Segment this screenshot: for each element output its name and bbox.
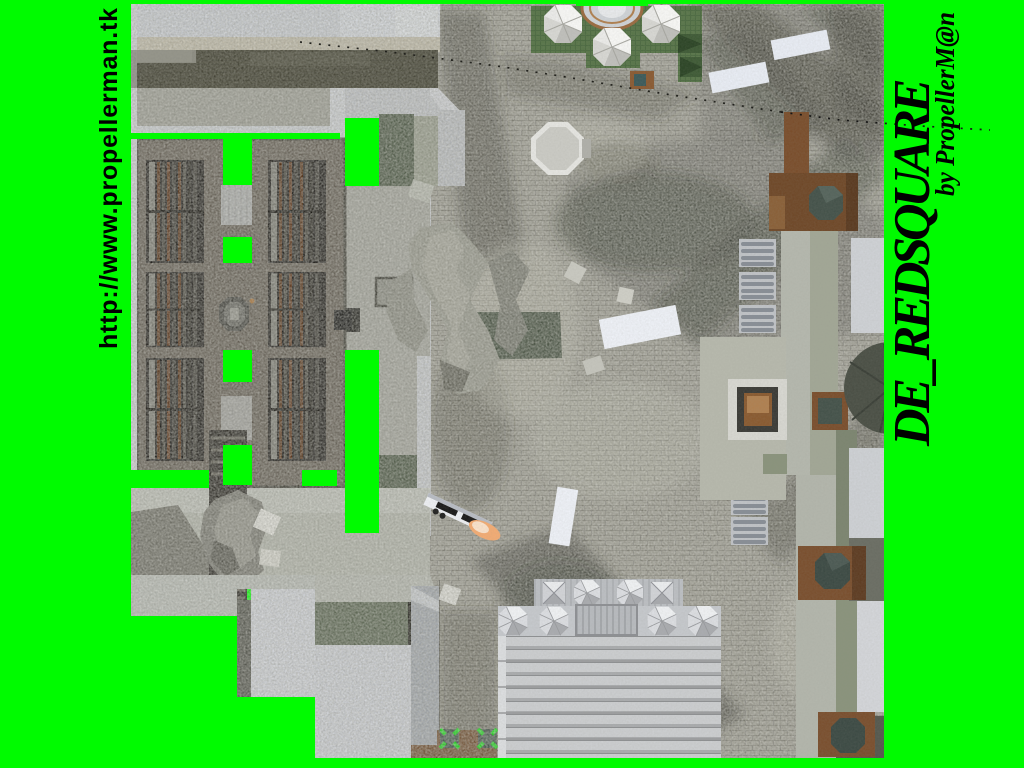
svg-text:by PropellerM@n: by PropellerM@n (930, 12, 960, 196)
svg-text:http://www.propellerman.tk: http://www.propellerman.tk (95, 8, 123, 349)
